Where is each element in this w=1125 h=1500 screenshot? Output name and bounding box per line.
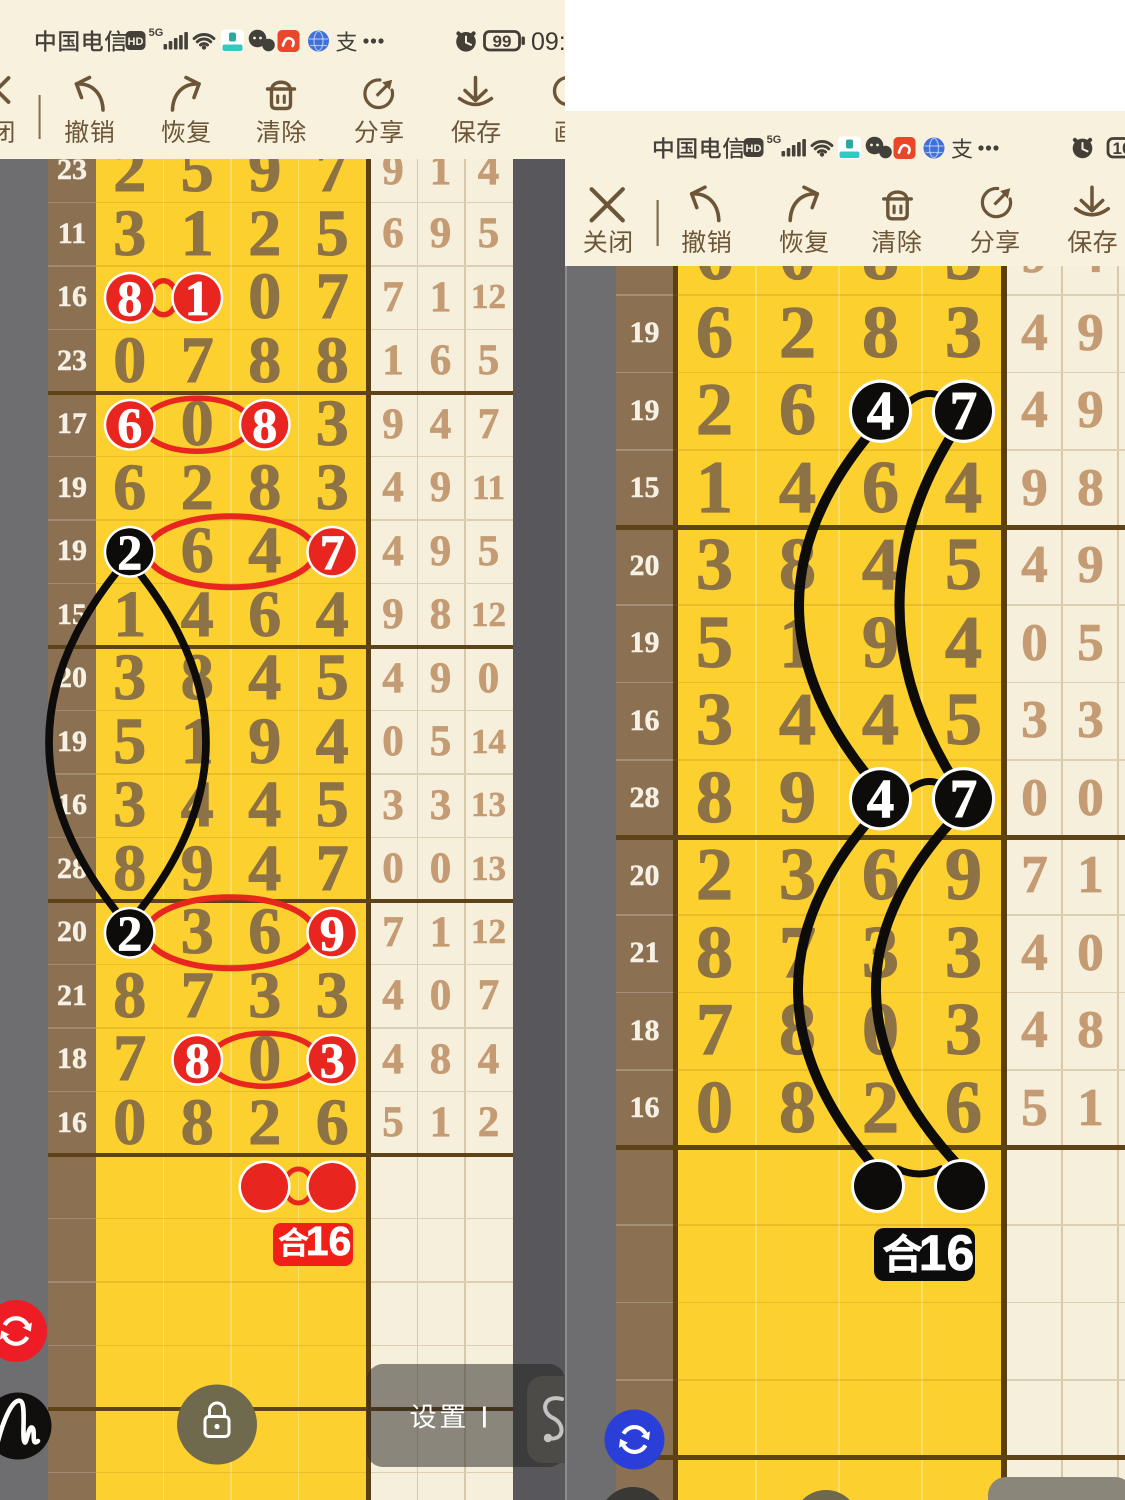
svg-text:99: 99 [493, 32, 512, 51]
svg-text:HD: HD [746, 143, 762, 155]
svg-text:09:1: 09:1 [531, 28, 565, 56]
svg-text:HD: HD [128, 36, 144, 48]
svg-text:5G: 5G [767, 134, 782, 146]
svg-text:10: 10 [1113, 139, 1125, 158]
svg-text:5G: 5G [149, 27, 164, 39]
